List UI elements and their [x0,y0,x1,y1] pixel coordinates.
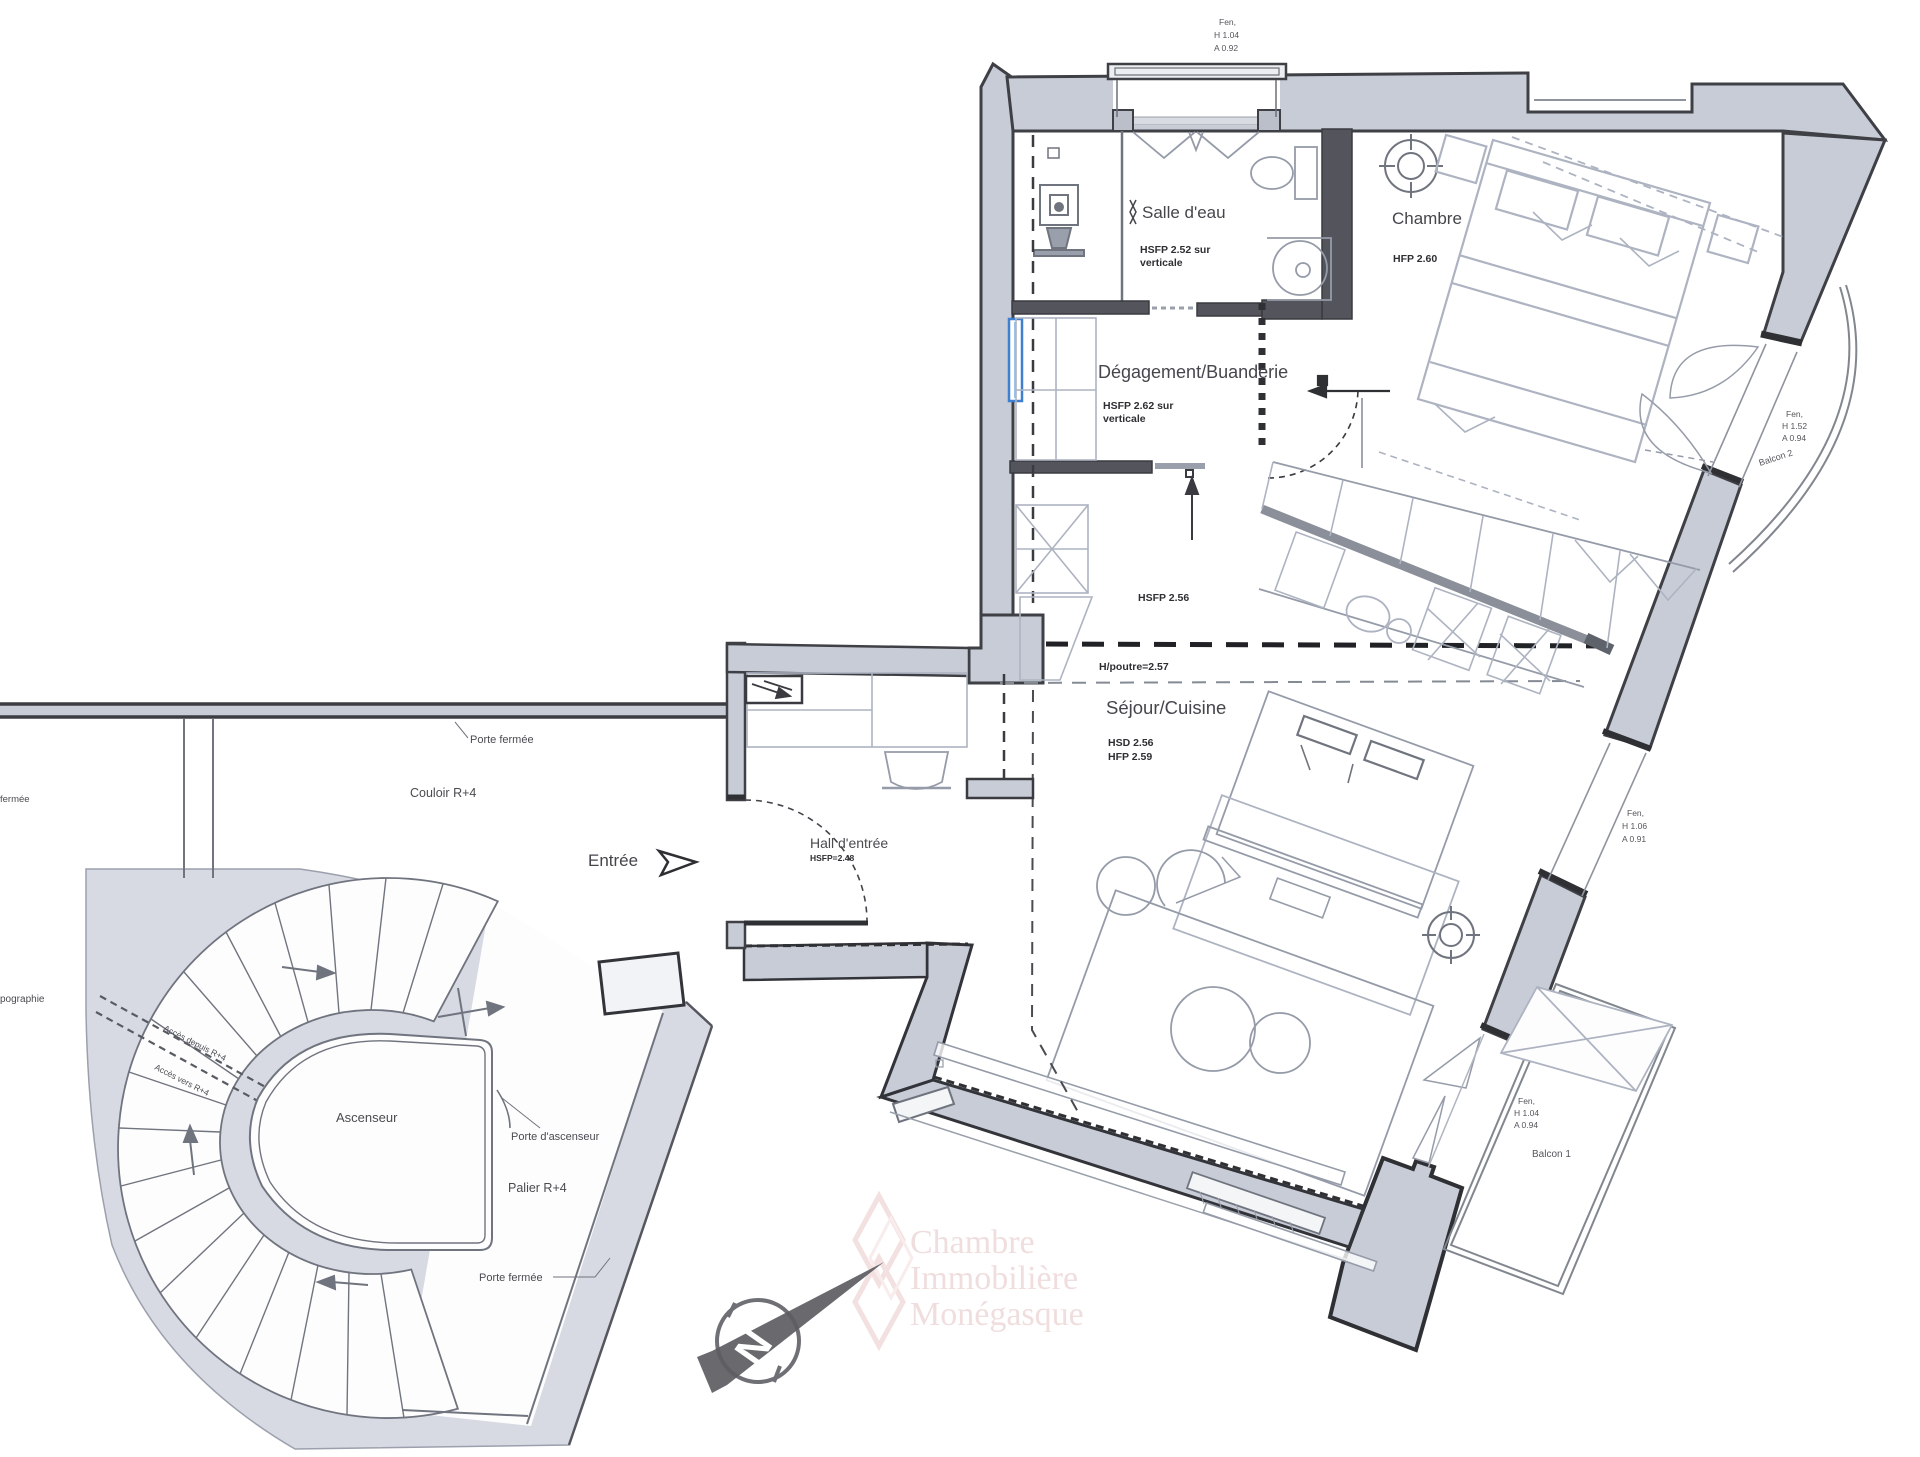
svg-text:Entrée: Entrée [588,851,638,870]
svg-text:H/poutre=2.57: H/poutre=2.57 [1099,661,1169,673]
svg-text:Chambre: Chambre [910,1224,1035,1261]
svg-text:H 1.06: H 1.06 [1622,821,1647,831]
svg-text:Dégagement/Buanderie: Dégagement/Buanderie [1098,362,1288,382]
svg-text:A 0.94: A 0.94 [1782,433,1806,443]
svg-text:Hall d'entrée: Hall d'entrée [810,835,888,851]
svg-text:Monégasque: Monégasque [910,1296,1084,1333]
svg-text:Couloir R+4: Couloir R+4 [410,786,476,800]
svg-text:A 0.92: A 0.92 [1214,43,1238,53]
svg-text:HSFP=2.48: HSFP=2.48 [810,853,854,863]
svg-text:HFP 2.60: HFP 2.60 [1393,253,1437,265]
svg-text:Fen,: Fen, [1219,17,1236,27]
svg-text:Porte fermée: Porte fermée [479,1272,543,1284]
svg-text:Fen,: Fen, [1627,808,1644,818]
svg-text:Porte fermée: Porte fermée [470,734,534,746]
svg-text:A 0.91: A 0.91 [1622,834,1646,844]
svg-text:HSFP 2.62 sur: HSFP 2.62 sur [1103,400,1173,412]
svg-text:HSFP 2.52 sur: HSFP 2.52 sur [1140,244,1210,256]
svg-text:HSFP 2.56: HSFP 2.56 [1138,592,1189,604]
svg-text:Balcon 1: Balcon 1 [1532,1149,1571,1160]
svg-text:A 0.94: A 0.94 [1514,1120,1538,1130]
svg-text:H 1.04: H 1.04 [1214,30,1239,40]
svg-text:Palier R+4: Palier R+4 [508,1181,567,1195]
svg-text:verticale: verticale [1103,413,1146,425]
svg-text:Séjour/Cuisine: Séjour/Cuisine [1106,697,1226,718]
svg-text:H 1.52: H 1.52 [1782,421,1807,431]
svg-text:Immobilière: Immobilière [910,1260,1078,1297]
svg-text:Ascenseur: Ascenseur [336,1110,398,1125]
svg-text:Salle d'eau: Salle d'eau [1142,203,1226,222]
svg-text:HFP 2.59: HFP 2.59 [1108,751,1152,763]
svg-text:pographie: pographie [0,994,45,1005]
svg-text:Porte d'ascenseur: Porte d'ascenseur [511,1131,600,1143]
svg-text:Fen,: Fen, [1518,1096,1535,1106]
svg-text:Fen,: Fen, [1786,409,1803,419]
svg-text:fermée: fermée [0,794,30,805]
svg-text:H 1.04: H 1.04 [1514,1108,1539,1118]
svg-text:HSD 2.56: HSD 2.56 [1108,737,1154,749]
svg-text:Chambre: Chambre [1392,209,1462,228]
svg-text:verticale: verticale [1140,257,1183,269]
